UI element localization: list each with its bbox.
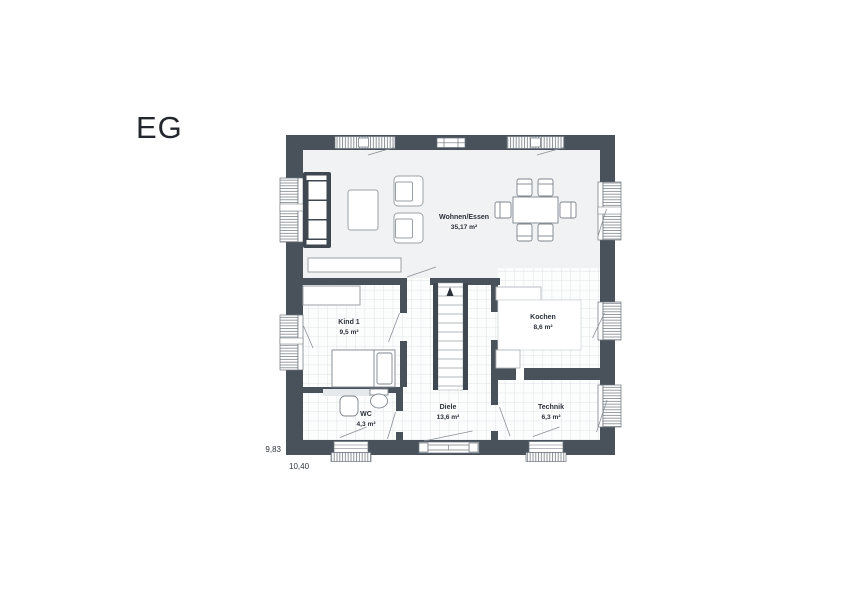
washbasin [340,396,358,416]
dining-chair [538,179,553,196]
window-right-living [598,182,621,240]
window-top-living-right [507,137,564,149]
wall-duct-notch [516,368,524,380]
room-label-wc: WC [360,411,372,418]
bed [332,350,395,387]
wardrobe [303,286,360,305]
dining-chair [517,179,532,196]
room-label-kind1: Kind 1 [338,319,359,326]
room-label-wohnen: Wohnen/Essen [439,214,489,221]
toilet [370,389,388,408]
window-bottom-technik [526,442,566,462]
kitchen-counter-corner [496,350,520,368]
sofa [303,172,331,248]
dimension-label-width: 10,40 [289,462,310,471]
dimension-label-height: 9,83 [265,445,281,454]
sideboard [308,258,401,272]
room-area-kind1: 9,5 m² [339,329,359,336]
room-label-diele: Diele [440,404,457,411]
dining-chair [495,202,511,218]
staircase [433,283,468,390]
armchair [394,176,423,206]
window-top-living-left [335,137,395,149]
coffee-table [348,190,378,230]
wc-shelf [323,389,371,396]
window-left-living [280,178,303,242]
room-area-wc: 4,3 m² [356,421,376,428]
entrance-door [419,442,479,453]
kitchen-counter-top [496,287,541,300]
dining-table [513,197,558,223]
room-label-kochen: Kochen [530,314,556,321]
kitchen-floor-extension [498,268,600,278]
room-area-diele: 13,6 m² [437,414,461,421]
window-right-kochen [598,302,621,340]
window-right-technik [598,385,621,427]
floor-plan-canvas: Wohnen/Essen 35,17 m² Kind 1 9,5 m² Koch… [0,0,842,595]
window-left-kind1 [280,315,303,370]
armchair [394,213,423,243]
dining-chair [560,202,576,218]
room-label-technik: Technik [538,404,564,411]
room-area-kochen: 8,6 m² [533,324,553,331]
dining-chair [517,224,532,241]
room-area-technik: 6,3 m² [541,414,561,421]
dining-chair [538,224,553,241]
window-bottom-wc [331,442,371,462]
floor-plan-page: EG [0,0,842,595]
window-top-small [437,138,465,148]
room-area-wohnen: 35,17 m² [451,224,478,231]
